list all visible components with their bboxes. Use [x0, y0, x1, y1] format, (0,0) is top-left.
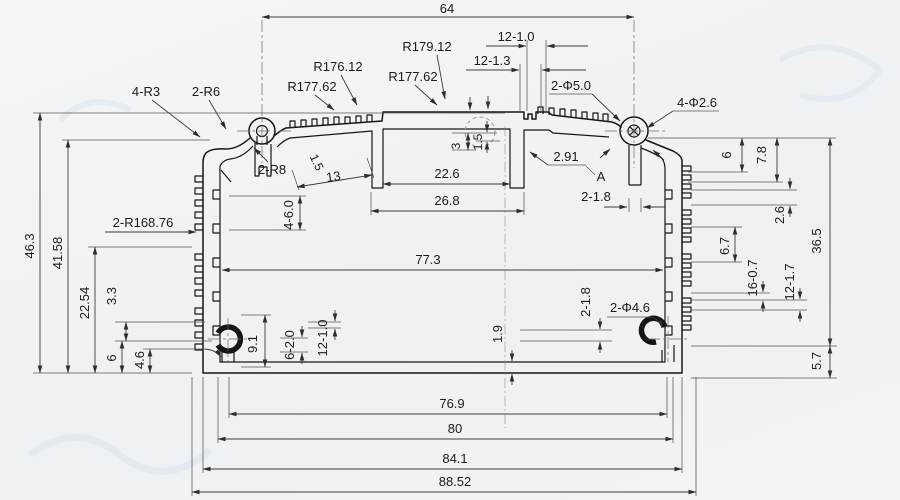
ext-right-26 — [691, 190, 797, 205]
right-wall-grooves — [665, 190, 672, 335]
label-r176: R176.12 — [313, 59, 362, 74]
label-13: 13 — [325, 168, 341, 185]
label-26: 2.6 — [772, 206, 787, 224]
left-wall-grooves — [213, 190, 220, 335]
label-463: 46.3 — [22, 233, 37, 258]
bottom-left-screw-port — [218, 327, 240, 362]
label-4-r3: 4-R3 — [132, 84, 160, 99]
label-r179: R179.12 — [402, 39, 451, 54]
label-4158: 41.58 — [50, 237, 65, 270]
lid-fins-right — [538, 107, 608, 121]
centerline-bottom-right-port — [648, 316, 690, 362]
label-2-r6: 2-R6 — [192, 84, 220, 99]
lid-outer-surface — [274, 112, 621, 136]
label-67: 6.7 — [717, 237, 732, 255]
leader-r177a — [415, 85, 437, 105]
label-r177-b: R177.62 — [287, 79, 336, 94]
label-2-r8: 2-R8 — [258, 162, 286, 177]
label-64: 64 — [440, 1, 454, 16]
left-wall-fins — [195, 176, 203, 350]
label-3: 3 — [449, 142, 463, 149]
label-2-18-bottom: 2-1.8 — [578, 287, 593, 317]
right-wall-fins — [682, 166, 691, 330]
label-16-07: 16-0.7 — [745, 260, 760, 297]
label-6-right: 6 — [719, 151, 734, 158]
dim-46-leader — [205, 349, 221, 357]
label-841: 84.1 — [442, 451, 467, 466]
leader-2r8 — [254, 148, 268, 162]
label-769: 76.9 — [439, 396, 464, 411]
label-4-60: 4-6.0 — [281, 200, 296, 230]
ext-slots-1210 — [527, 40, 546, 111]
watermark-swirl — [780, 47, 880, 99]
technical-drawing: 64 12-1.0 12-1.3 R179.12 R177.62 R176.12… — [0, 0, 900, 500]
leader-4d26 — [647, 111, 673, 128]
label-291: 2.91 — [553, 149, 578, 164]
leader-tab-a — [600, 149, 610, 158]
label-2-d5: 2-Φ5.0 — [551, 78, 591, 93]
label-46: 4.6 — [132, 351, 147, 369]
label-268: 26.8 — [434, 193, 459, 208]
ext-218-top — [629, 198, 641, 212]
ext-right-6-78 — [688, 172, 783, 182]
label-226: 22.6 — [434, 166, 459, 181]
corner-chamfer — [221, 170, 231, 182]
boss-hanging-tab — [629, 145, 641, 185]
label-773: 77.3 — [415, 252, 440, 267]
label-r177-a: R177.62 — [388, 69, 437, 84]
bottom-right-screw-port — [641, 318, 674, 362]
label-2-d46: 2-Φ4.6 — [610, 300, 650, 315]
label-12-1-0-top: 12-1.0 — [498, 29, 535, 44]
detail-a-leader — [586, 166, 595, 175]
label-6-left: 6 — [104, 354, 119, 361]
leader-291 — [530, 152, 548, 165]
label-80: 80 — [448, 421, 462, 436]
extrusion-profile — [195, 107, 691, 373]
label-4-d26: 4-Φ2.6 — [677, 95, 717, 110]
label-6-20: 6-2.0 — [282, 330, 297, 360]
leader-4r3 — [152, 100, 200, 137]
label-fin-15: 1.5 — [307, 152, 327, 173]
label-365: 36.5 — [809, 228, 824, 253]
label-detail-a: A — [597, 169, 606, 184]
label-12-1-3: 12-1.3 — [474, 53, 511, 68]
leader-2d5 — [592, 94, 620, 121]
lid-fins-left — [290, 115, 372, 128]
leader-2r6 — [209, 100, 226, 129]
leader-r177b — [315, 95, 334, 110]
leader-tab-b — [653, 150, 664, 160]
label-78: 7.8 — [754, 146, 769, 164]
label-2-18-top: 2-1.8 — [581, 189, 611, 204]
label-8852: 88.52 — [439, 474, 472, 489]
watermark-swirl — [60, 102, 130, 120]
label-57: 5.7 — [809, 352, 824, 370]
ext-218-bottom — [520, 330, 612, 341]
leader-r176 — [341, 75, 357, 105]
label-91: 9.1 — [245, 335, 260, 353]
label-12-17: 12-1.7 — [782, 264, 797, 301]
ext-slots-1213 — [520, 64, 541, 111]
drawing-sheet: 64 12-1.0 12-1.3 R179.12 R177.62 R176.12… — [0, 0, 900, 500]
leader-lines — [152, 55, 719, 328]
label-12-10-bottom: 12-1.0 — [315, 320, 330, 357]
label-r16876: 2-R168.76 — [113, 215, 174, 230]
label-19: 1.9 — [490, 325, 505, 343]
label-33: 3.3 — [104, 287, 119, 305]
label-15-rib: 1.5 — [471, 133, 485, 150]
label-2254: 22.54 — [77, 287, 92, 320]
dimension-labels: 64 12-1.0 12-1.3 R179.12 R177.62 R176.12… — [22, 1, 824, 489]
leader-r179 — [437, 55, 445, 99]
watermark-swirl — [30, 438, 210, 472]
